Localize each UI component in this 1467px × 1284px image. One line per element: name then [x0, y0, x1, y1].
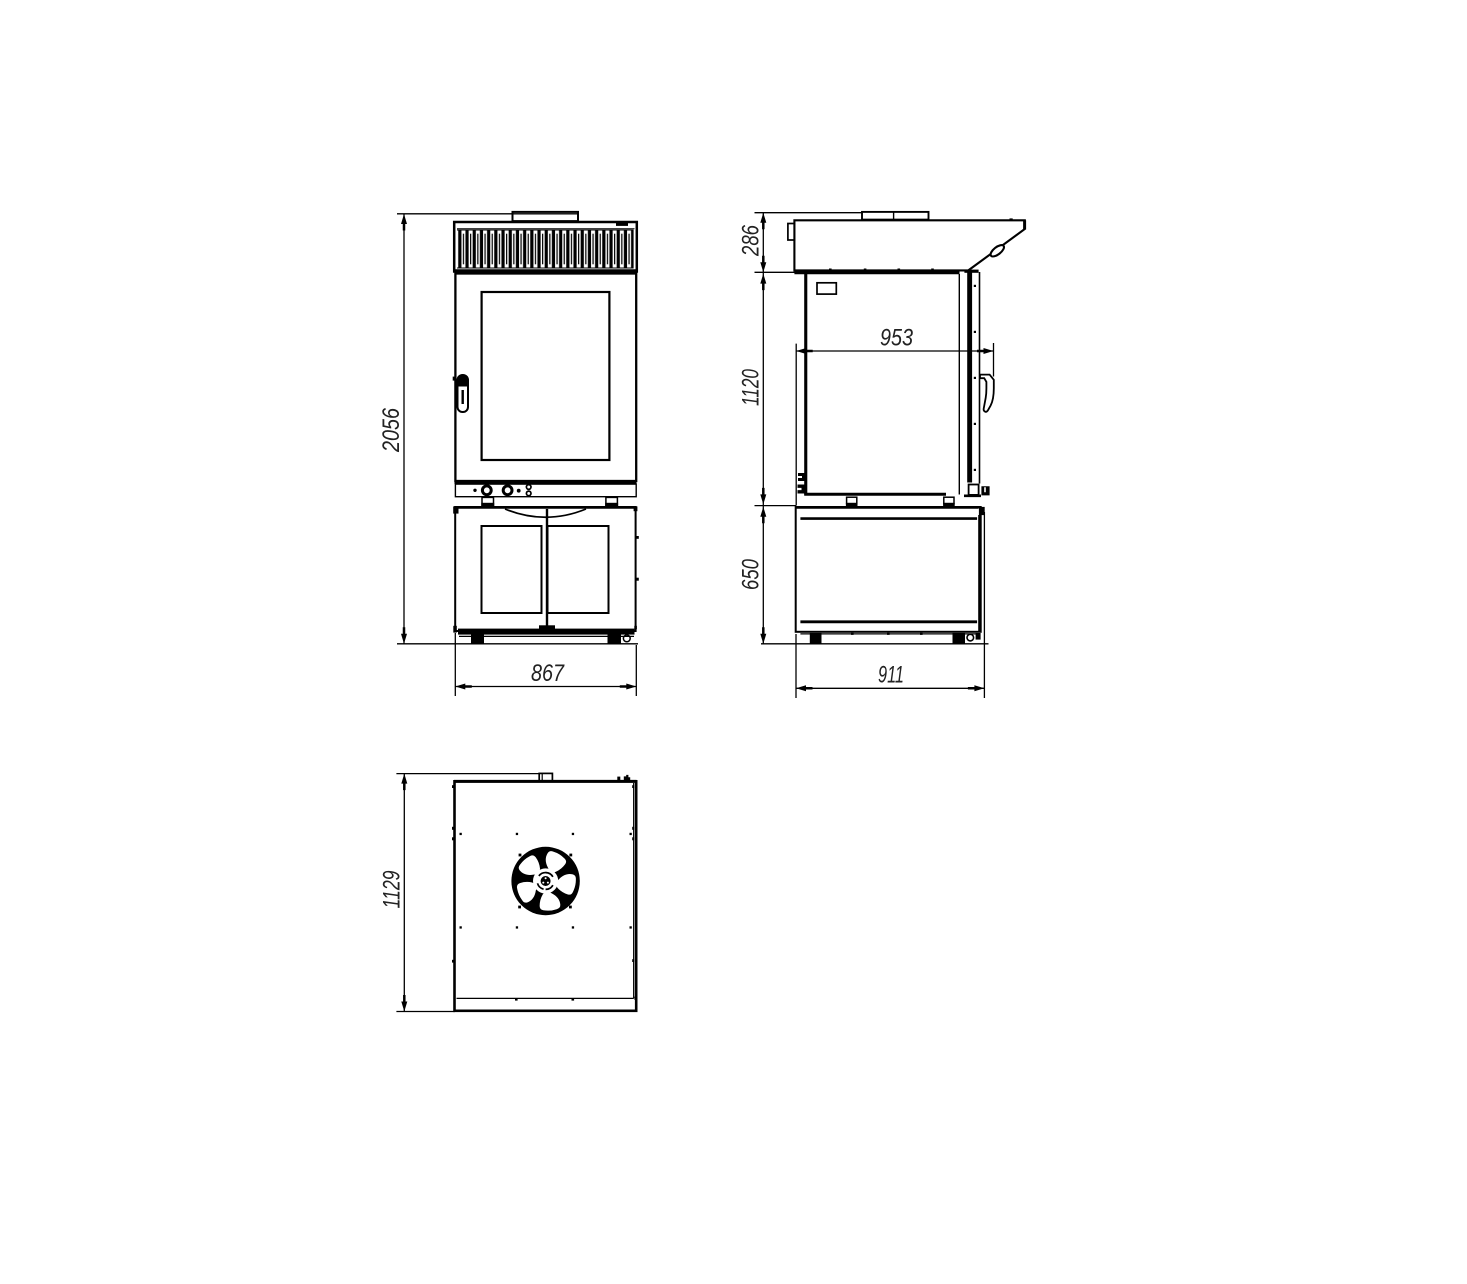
svg-text:286: 286	[738, 225, 765, 257]
svg-text:1129: 1129	[379, 870, 406, 908]
svg-text:953: 953	[880, 325, 913, 352]
svg-text:911: 911	[878, 662, 904, 689]
svg-text:867: 867	[531, 660, 565, 687]
svg-text:2056: 2056	[378, 408, 405, 453]
svg-text:650: 650	[738, 559, 765, 590]
svg-text:1120: 1120	[738, 369, 765, 406]
